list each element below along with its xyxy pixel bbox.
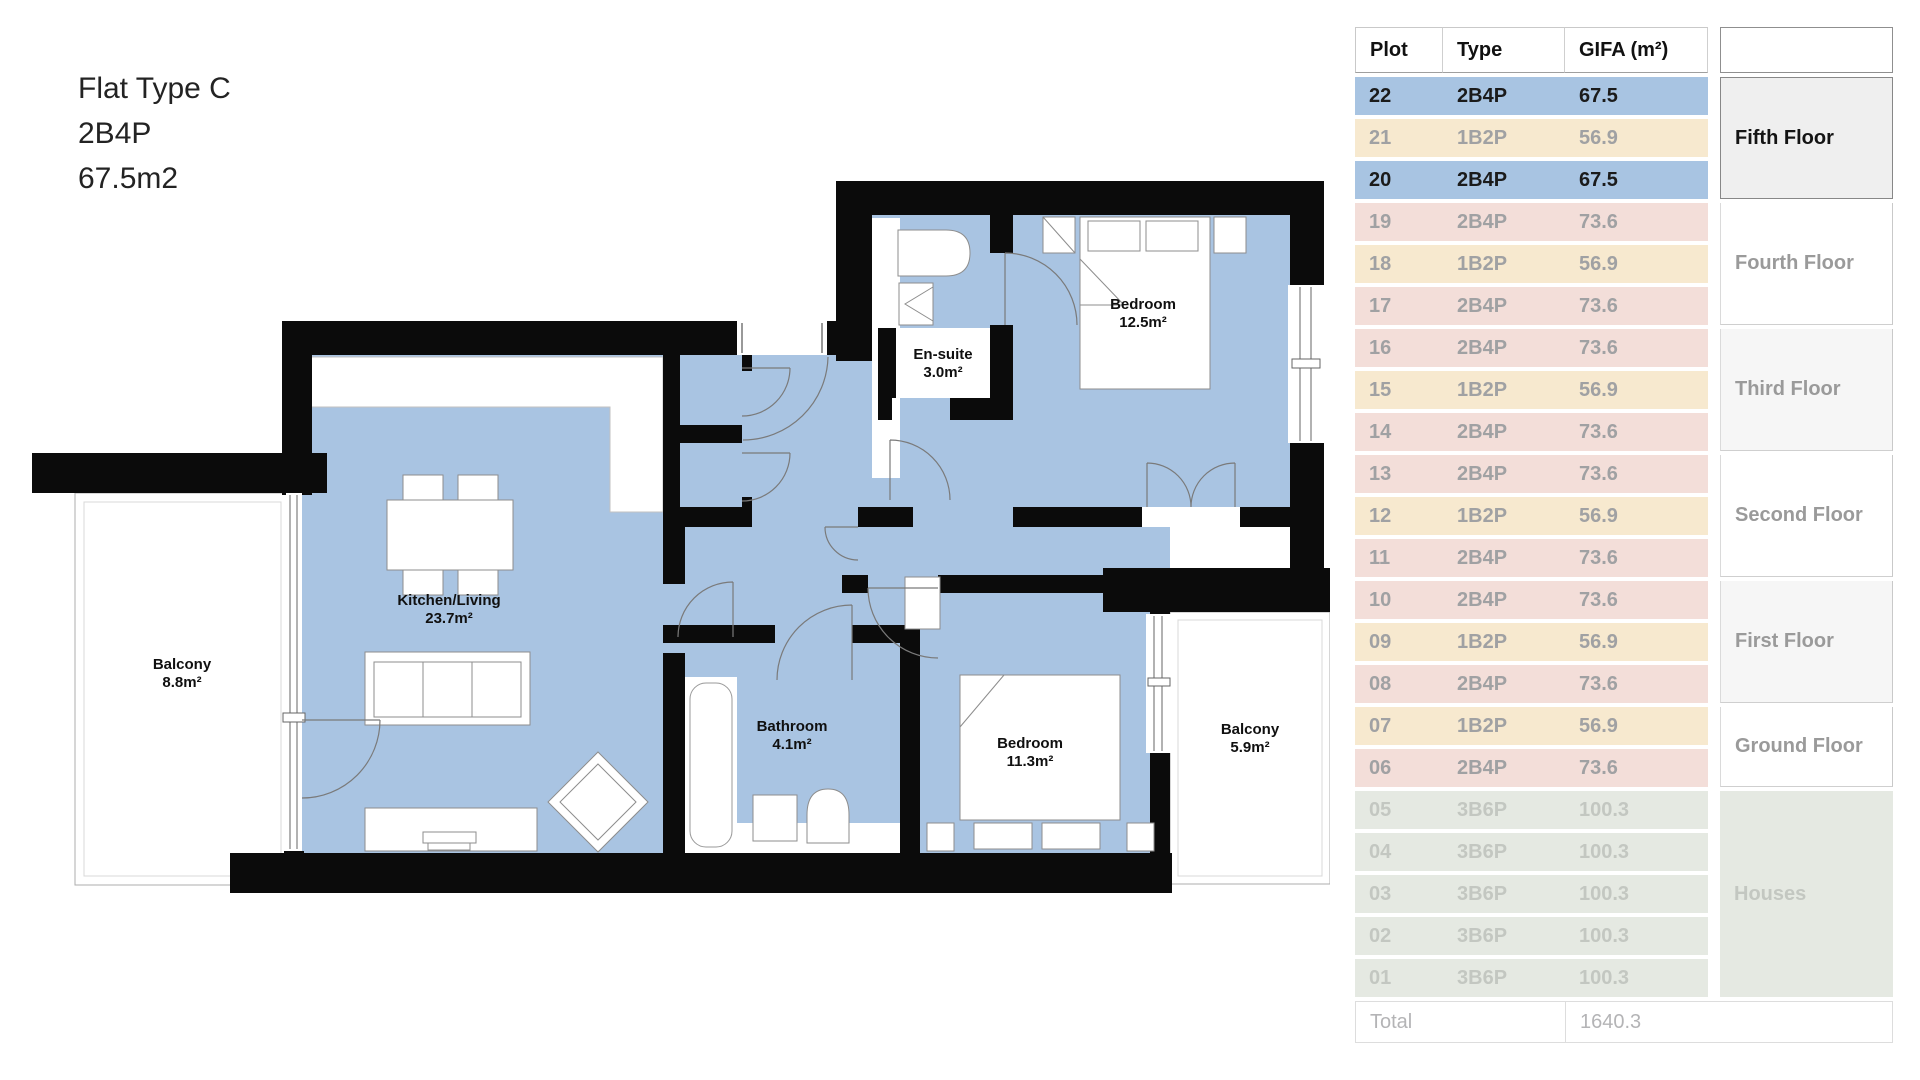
room-area: 11.3m² (1007, 753, 1054, 770)
plot-cell[interactable]: 14 (1355, 413, 1443, 451)
table-row-plot-22[interactable]: 22 2B4P 67.5 Fifth Floor (1355, 77, 1893, 115)
floor-label-second[interactable]: Second Floor (1720, 455, 1893, 577)
type-cell[interactable]: 1B2P (1443, 119, 1565, 157)
gifa-cell[interactable]: 100.3 (1565, 917, 1708, 955)
nightstand (1214, 217, 1246, 253)
sofa (365, 652, 530, 725)
chair (403, 568, 443, 595)
gifa-cell[interactable]: 73.6 (1565, 413, 1708, 451)
room-label: Kitchen/Living (397, 592, 500, 609)
plot-cell[interactable]: 21 (1355, 119, 1443, 157)
type-cell[interactable]: 2B4P (1443, 749, 1565, 787)
type-cell[interactable]: 2B4P (1443, 455, 1565, 493)
floorplan-svg: Balcony 8.8m² Kitchen/Living 23.7m² Bath… (30, 175, 1330, 905)
type-cell[interactable]: 2B4P (1443, 161, 1565, 199)
gifa-cell[interactable]: 73.6 (1565, 581, 1708, 619)
plot-cell[interactable]: 08 (1355, 665, 1443, 703)
type-cell[interactable]: 1B2P (1443, 707, 1565, 745)
gifa-cell[interactable]: 56.9 (1565, 707, 1708, 745)
nightstand (1127, 823, 1154, 851)
floor-label-houses[interactable]: Houses (1720, 791, 1893, 997)
floorplan: Balcony 8.8m² Kitchen/Living 23.7m² Bath… (30, 175, 1330, 905)
pillow (1146, 221, 1198, 251)
gifa-cell[interactable]: 56.9 (1565, 371, 1708, 409)
total-label: Total (1355, 1001, 1565, 1043)
gifa-cell[interactable]: 73.6 (1565, 539, 1708, 577)
type-cell[interactable]: 3B6P (1443, 833, 1565, 871)
room-label: En-suite (913, 346, 972, 363)
type-cell[interactable]: 1B2P (1443, 371, 1565, 409)
pillow (1042, 823, 1100, 849)
type-cell[interactable]: 2B4P (1443, 287, 1565, 325)
plot-cell[interactable]: 12 (1355, 497, 1443, 535)
gifa-cell[interactable]: 73.6 (1565, 203, 1708, 241)
header-plot: Plot (1355, 27, 1443, 73)
table-row-plot-19[interactable]: 19 2B4P 73.6 Fourth Floor (1355, 203, 1893, 241)
table-row-plot-16[interactable]: 16 2B4P 73.6 Third Floor (1355, 329, 1893, 367)
bathtub (690, 683, 732, 847)
ensuite-bath (898, 230, 970, 276)
table-header-row: Plot Type GIFA (m²) (1355, 27, 1893, 73)
room-label: Bedroom (997, 735, 1063, 752)
plot-cell[interactable]: 02 (1355, 917, 1443, 955)
flat-type-name: Flat Type C (78, 66, 231, 111)
type-cell[interactable]: 1B2P (1443, 497, 1565, 535)
gifa-cell[interactable]: 73.6 (1565, 749, 1708, 787)
wardrobe (905, 577, 940, 629)
plot-cell[interactable]: 07 (1355, 707, 1443, 745)
room-label: Bathroom (757, 718, 828, 735)
plot-cell[interactable]: 03 (1355, 875, 1443, 913)
chair (458, 475, 498, 502)
room-label: Balcony (153, 656, 212, 673)
gifa-cell[interactable]: 67.5 (1565, 77, 1708, 115)
gifa-cell[interactable]: 100.3 (1565, 833, 1708, 871)
type-cell[interactable]: 3B6P (1443, 875, 1565, 913)
plot-cell[interactable]: 18 (1355, 245, 1443, 283)
table-row-plot-10[interactable]: 10 2B4P 73.6 First Floor (1355, 581, 1893, 619)
room-area: 23.7m² (425, 610, 473, 627)
room-area: 4.1m² (772, 736, 811, 753)
floor-label-ground[interactable]: Ground Floor (1720, 707, 1893, 787)
plot-cell[interactable]: 20 (1355, 161, 1443, 199)
gifa-cell[interactable]: 73.6 (1565, 287, 1708, 325)
plot-cell[interactable]: 09 (1355, 623, 1443, 661)
chair (403, 475, 443, 502)
gifa-cell[interactable]: 73.6 (1565, 665, 1708, 703)
type-cell[interactable]: 1B2P (1443, 245, 1565, 283)
floor-label-third[interactable]: Third Floor (1720, 329, 1893, 451)
type-cell[interactable]: 2B4P (1443, 203, 1565, 241)
room-area: 8.8m² (162, 674, 201, 691)
gifa-cell[interactable]: 100.3 (1565, 791, 1708, 829)
pillow (974, 823, 1032, 849)
gifa-cell[interactable]: 100.3 (1565, 959, 1708, 997)
flat-type-code: 2B4P (78, 111, 231, 156)
plot-cell[interactable]: 16 (1355, 329, 1443, 367)
header-floor (1720, 27, 1893, 73)
chair (458, 568, 498, 595)
plot-cell[interactable]: 13 (1355, 455, 1443, 493)
type-cell[interactable]: 3B6P (1443, 917, 1565, 955)
plot-cell[interactable]: 05 (1355, 791, 1443, 829)
table-row-plot-13[interactable]: 13 2B4P 73.6 Second Floor (1355, 455, 1893, 493)
gifa-cell[interactable]: 56.9 (1565, 245, 1708, 283)
plot-cell[interactable]: 11 (1355, 539, 1443, 577)
tv-bench (365, 808, 537, 851)
gifa-cell[interactable]: 56.9 (1565, 623, 1708, 661)
room-area: 5.9m² (1230, 739, 1269, 756)
gifa-cell[interactable]: 73.6 (1565, 329, 1708, 367)
plot-cell[interactable]: 10 (1355, 581, 1443, 619)
dining-table (387, 500, 513, 570)
plot-cell[interactable]: 06 (1355, 749, 1443, 787)
type-cell[interactable]: 1B2P (1443, 623, 1565, 661)
floor-label-fourth[interactable]: Fourth Floor (1720, 203, 1893, 325)
gifa-cell[interactable]: 56.9 (1565, 119, 1708, 157)
plot-cell[interactable]: 04 (1355, 833, 1443, 871)
bathroom-sink (753, 795, 797, 841)
type-cell[interactable]: 3B6P (1443, 959, 1565, 997)
gifa-cell[interactable]: 100.3 (1565, 875, 1708, 913)
ensuite-room (896, 328, 990, 398)
room-area: 3.0m² (923, 364, 962, 381)
entry-opening (737, 321, 827, 355)
table-total-row: Total 1640.3 (1355, 1001, 1893, 1043)
room-area: 12.5m² (1119, 314, 1167, 331)
window-living-balcony (283, 493, 305, 851)
header-type: Type (1443, 27, 1565, 73)
room-label: Balcony (1221, 721, 1280, 738)
table-row-plot-05[interactable]: 05 3B6P 100.3 Houses (1355, 791, 1893, 829)
toilet (807, 789, 849, 843)
floor-label-fifth[interactable]: Fifth Floor (1720, 77, 1893, 199)
header-gifa: GIFA (m²) (1565, 27, 1708, 73)
type-cell[interactable]: 2B4P (1443, 329, 1565, 367)
type-cell[interactable]: 2B4P (1443, 665, 1565, 703)
total-value: 1640.3 (1565, 1001, 1893, 1043)
table-row-plot-07[interactable]: 07 1B2P 56.9 Ground Floor (1355, 707, 1893, 745)
nightstand (927, 823, 954, 851)
plot-cell[interactable]: 17 (1355, 287, 1443, 325)
gifa-cell[interactable]: 73.6 (1565, 455, 1708, 493)
plot-cell[interactable]: 01 (1355, 959, 1443, 997)
plot-cell[interactable]: 19 (1355, 203, 1443, 241)
window-bedroom-right (1288, 285, 1324, 443)
type-cell[interactable]: 2B4P (1443, 413, 1565, 451)
plot-table: Plot Type GIFA (m²) 22 2B4P 67.5 Fifth F… (1355, 23, 1893, 1047)
floor-label-first[interactable]: First Floor (1720, 581, 1893, 703)
gifa-cell[interactable]: 56.9 (1565, 497, 1708, 535)
plot-cell[interactable]: 22 (1355, 77, 1443, 115)
type-cell[interactable]: 3B6P (1443, 791, 1565, 829)
type-cell[interactable]: 2B4P (1443, 581, 1565, 619)
type-cell[interactable]: 2B4P (1443, 539, 1565, 577)
plot-cell[interactable]: 15 (1355, 371, 1443, 409)
type-cell[interactable]: 2B4P (1443, 77, 1565, 115)
window-balcony-right (1146, 614, 1172, 753)
pillow (1088, 221, 1140, 251)
gifa-cell[interactable]: 67.5 (1565, 161, 1708, 199)
room-label: Bedroom (1110, 296, 1176, 313)
